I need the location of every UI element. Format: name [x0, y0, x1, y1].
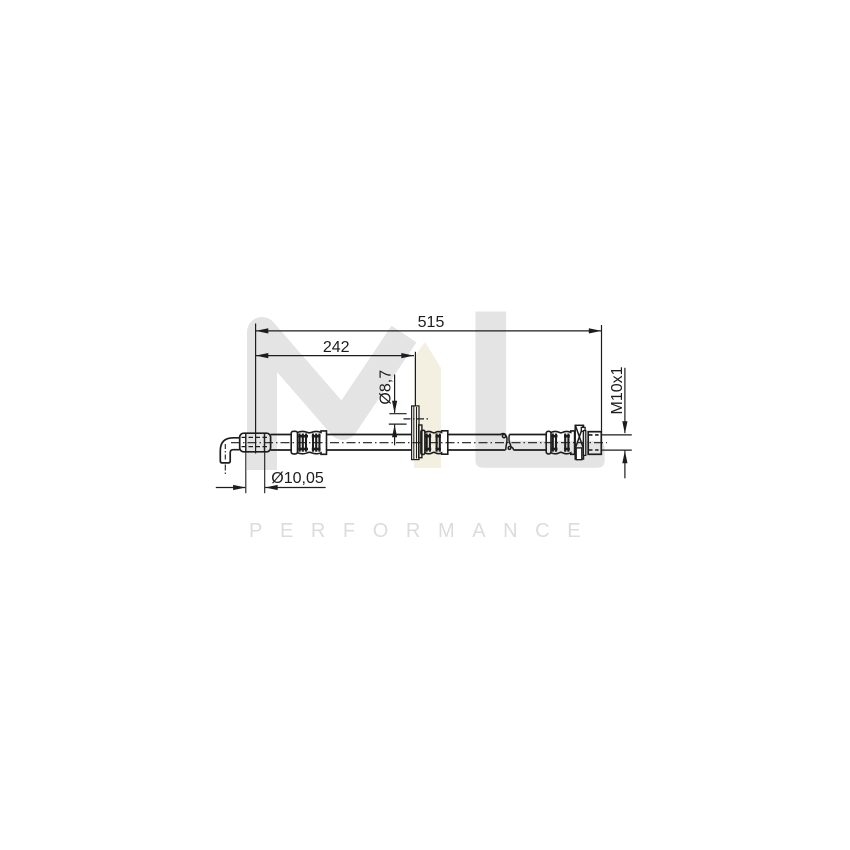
- svg-text:Ø10,05: Ø10,05: [271, 470, 324, 487]
- svg-text:M10x1: M10x1: [609, 366, 626, 414]
- svg-text:242: 242: [323, 339, 350, 356]
- svg-text:515: 515: [418, 314, 445, 331]
- svg-text:Ø8,7: Ø8,7: [378, 370, 395, 405]
- svg-text:PERFORMANCE: PERFORMANCE: [249, 520, 598, 542]
